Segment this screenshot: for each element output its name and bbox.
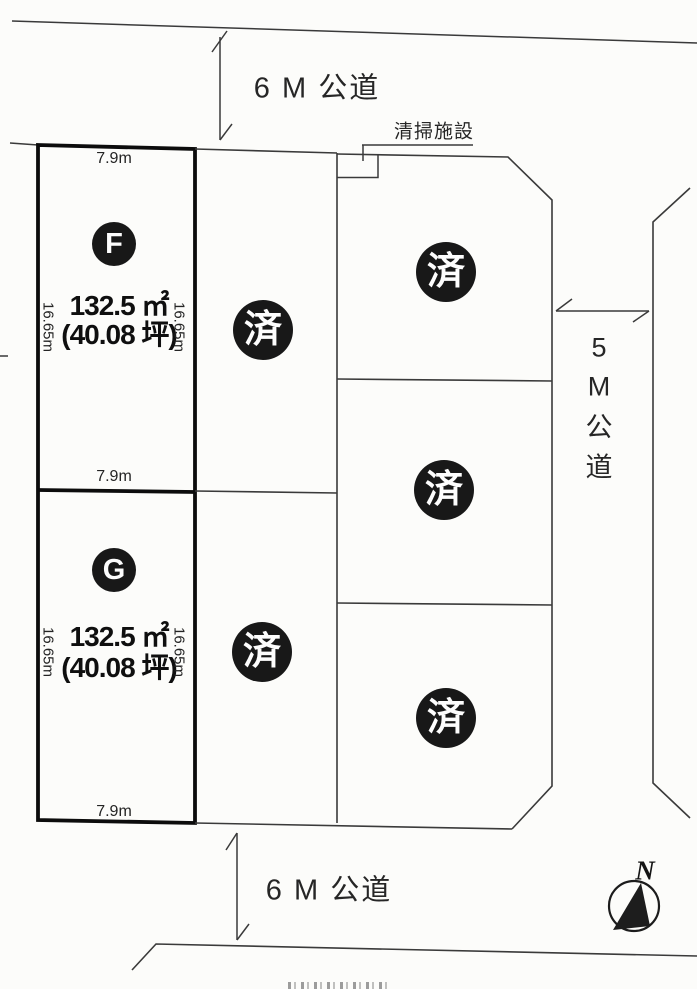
top-road-label: 6 M 公道 <box>254 75 380 104</box>
compass-rose <box>609 881 659 931</box>
right-road-edge-line <box>653 188 690 818</box>
sold-badge: 済 <box>416 242 476 302</box>
right-road-label-char: 5 <box>591 335 606 362</box>
plot-top-left-stub-line <box>10 143 38 145</box>
right-road-label-char: M <box>588 374 611 401</box>
lot-g-depth-right-label: 16.65m <box>172 627 187 677</box>
compass-north-label: N <box>635 858 655 885</box>
lot-f-area-m2: 132.5 ㎡ <box>70 292 169 320</box>
lot-g-badge: G <box>92 548 136 592</box>
bottom-road-edge-line <box>132 944 697 970</box>
sold-badge: 済 <box>233 300 293 360</box>
top-road-edge-line <box>12 21 697 43</box>
sold-badge: 済 <box>416 688 476 748</box>
lot-f-badge: F <box>92 222 136 266</box>
right-road-label-char: 公 <box>586 415 613 442</box>
sold-badge: 済 <box>232 622 292 682</box>
lot-g-frontage-bottom-label: 7.9m <box>96 804 132 820</box>
right-road-dimension-arrow <box>556 299 649 322</box>
lot-g-area-tsubo: (40.08 坪) <box>61 654 177 682</box>
top-road-dimension-arrow <box>212 31 232 140</box>
lot-g-area-m2: 132.5 ㎡ <box>70 623 169 651</box>
lot-g-depth-left-label: 16.65m <box>41 627 56 677</box>
lot-f-depth-left-label: 16.65m <box>41 302 56 352</box>
compass-north-needle <box>613 883 650 930</box>
lot-g-frontage-label: 7.9m <box>96 469 132 485</box>
lot-map-canvas: 6 M 公道 6 M 公道 5 M 公 道 清掃施設 7.9m F 132.5 … <box>0 0 697 989</box>
lot-map-linework <box>0 0 697 989</box>
bottom-road-dimension-arrow <box>226 833 249 940</box>
bottom-road-label: 6 M 公道 <box>266 877 392 906</box>
lot-f-area-tsubo: (40.08 坪) <box>61 321 177 349</box>
lot-f-depth-right-label: 16.65m <box>172 302 187 352</box>
cropped-caption-fragment <box>288 982 387 989</box>
lot-f-frontage-label: 7.9m <box>96 151 132 167</box>
cleaning-facility-box <box>337 145 473 178</box>
cleaning-facility-label: 清掃施設 <box>394 123 474 142</box>
right-road-label-char: 道 <box>586 455 613 482</box>
sold-badge: 済 <box>414 460 474 520</box>
